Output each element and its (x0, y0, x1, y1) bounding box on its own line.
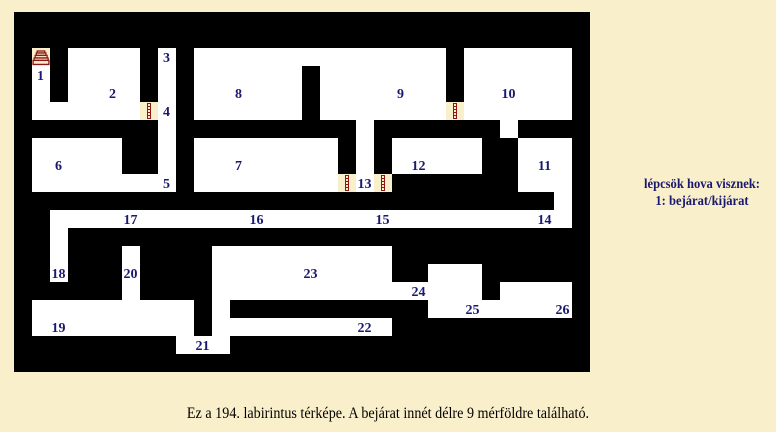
svg-text:8: 8 (235, 87, 242, 102)
svg-text:21: 21 (196, 339, 210, 354)
svg-text:1: 1 (37, 69, 44, 84)
svg-text:7: 7 (235, 159, 242, 174)
svg-text:20: 20 (124, 267, 138, 282)
svg-text:18: 18 (52, 267, 66, 282)
svg-text:14: 14 (538, 213, 552, 228)
svg-text:17: 17 (124, 213, 138, 228)
svg-text:3: 3 (163, 51, 170, 66)
svg-text:9: 9 (397, 87, 404, 102)
svg-text:19: 19 (52, 321, 66, 336)
svg-text:4: 4 (163, 105, 170, 120)
svg-text:12: 12 (412, 159, 426, 174)
svg-text:26: 26 (556, 303, 570, 318)
svg-text:11: 11 (538, 159, 551, 174)
svg-text:22: 22 (358, 321, 372, 336)
svg-text:2: 2 (109, 87, 116, 102)
svg-text:24: 24 (412, 285, 426, 300)
svg-text:16: 16 (250, 213, 264, 228)
svg-text:5: 5 (163, 177, 170, 192)
svg-text:6: 6 (55, 159, 62, 174)
svg-text:15: 15 (376, 213, 390, 228)
svg-text:13: 13 (358, 177, 372, 192)
svg-text:10: 10 (502, 87, 516, 102)
svg-text:23: 23 (304, 267, 318, 282)
svg-text:25: 25 (466, 303, 480, 318)
